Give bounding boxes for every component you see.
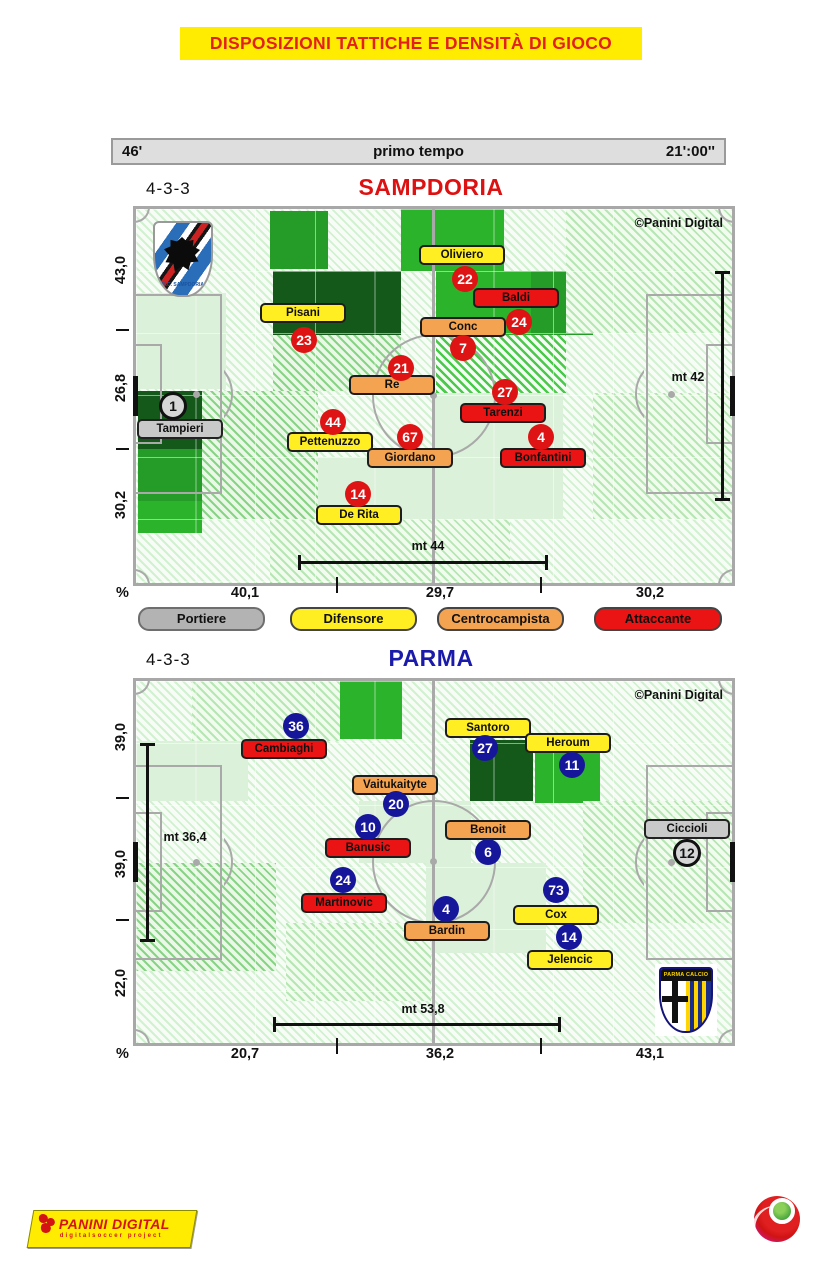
player-chip-cox: Cox: [513, 905, 599, 925]
player-chip-bonfantini: Bonfantini: [500, 448, 586, 468]
sampdoria-pitch: U.C. SAMPDORIA ©Panini Digital mt 42 mt …: [133, 206, 735, 586]
samp-zone-pct: 30,2: [605, 585, 695, 601]
player-chip-ciccioli: Ciccioli: [644, 819, 730, 839]
axis-tick: [336, 577, 338, 593]
player-number-7: 7: [450, 335, 476, 361]
player-number-14: 14: [556, 924, 582, 950]
parma-zone-pct: 36,2: [395, 1046, 485, 1062]
player-chip-martinovic: Martinovic: [301, 893, 387, 913]
parma-players-layer: Ciccioli12Santoro27Heroum11Cox73Jelencic…: [136, 681, 732, 1043]
player-number-67: 67: [397, 424, 423, 450]
player-chip-tarenzi: Tarenzi: [460, 403, 546, 423]
player-number-12: 12: [673, 839, 701, 867]
legend-defender: Difensore: [290, 607, 417, 631]
player-chip-cambiaghi: Cambiaghi: [241, 739, 327, 759]
parma-crest-text: PARMA CALCIO: [661, 969, 711, 981]
report-page: DISPOSIZIONI TATTICHE E DENSITÀ DI GIOCO…: [0, 0, 822, 1276]
player-chip-heroum: Heroum: [525, 733, 611, 753]
parma-zone-pct: 43,1: [605, 1046, 695, 1062]
legend-goalkeeper: Portiere: [138, 607, 265, 631]
player-number-24: 24: [330, 867, 356, 893]
player-number-6: 6: [475, 839, 501, 865]
legend-midfielder: Centrocampista: [437, 607, 564, 631]
player-chip-de-rita: De Rita: [316, 505, 402, 525]
samp-zone-pct: 40,1: [200, 585, 290, 601]
parma-crest-shield: PARMA CALCIO: [659, 967, 713, 1033]
player-chip-pisani: Pisani: [260, 303, 346, 323]
minute-label: 46': [122, 143, 242, 160]
parma-crest: PARMA CALCIO: [655, 964, 717, 1036]
axis-tick: [540, 577, 542, 593]
sampdoria-crest: U.C. SAMPDORIA: [153, 221, 213, 297]
parma-crest-cross: [672, 981, 678, 1023]
player-number-27: 27: [472, 735, 498, 761]
player-number-10: 10: [355, 814, 381, 840]
player-chip-jelencic: Jelencic: [527, 950, 613, 970]
player-number-23: 23: [291, 327, 317, 353]
samp-left-axis-value: 30,2: [113, 483, 129, 527]
parma-crest-cross: [662, 996, 688, 1002]
sphere-logo-ring: [769, 1198, 795, 1224]
parma-zone-pct: 20,7: [200, 1046, 290, 1062]
axis-tick: [116, 329, 129, 331]
parma-pitch: PARMA CALCIO ©Panini Digital mt 36,4 mt …: [133, 678, 735, 1046]
parma-left-axis-value: 22,0: [113, 961, 129, 1005]
axis-tick: [116, 448, 129, 450]
sampdoria-title: SAMPDORIA: [133, 174, 729, 201]
axis-tick: [336, 1038, 338, 1054]
sampdoria-crest-silhouette: [164, 237, 200, 273]
player-number-14: 14: [345, 481, 371, 507]
parma-left-axis-value: 39,0: [113, 715, 129, 759]
player-number-1: 1: [159, 392, 187, 420]
samp-left-axis-value: 43,0: [113, 248, 129, 292]
axis-tick: [540, 1038, 542, 1054]
player-number-36: 36: [283, 713, 309, 739]
player-chip-pettenuzzo: Pettenuzzo: [287, 432, 373, 452]
time-bar: 46' primo tempo 21':00'': [111, 138, 726, 165]
clock-label: 21':00'': [595, 143, 715, 160]
parma-left-axis-value: 39,0: [113, 842, 129, 886]
player-number-22: 22: [452, 266, 478, 292]
player-chip-banusic: Banusic: [325, 838, 411, 858]
player-number-27: 27: [492, 379, 518, 405]
axis-tick: [116, 797, 129, 799]
player-number-73: 73: [543, 877, 569, 903]
page-title: DISPOSIZIONI TATTICHE E DENSITÀ DI GIOCO: [180, 27, 642, 60]
panini-logo-title: PANINI DIGITAL: [59, 1216, 170, 1232]
player-chip-oliviero: Oliviero: [419, 245, 505, 265]
sampdoria-crest-text: U.C. SAMPDORIA: [155, 282, 211, 288]
parma-title: PARMA: [133, 645, 729, 672]
parma-percent-sign: %: [116, 1046, 129, 1062]
panini-digital-logo: PANINI DIGITAL digitalsoccer project: [27, 1210, 198, 1248]
player-chip-baldi: Baldi: [473, 288, 559, 308]
samp-percent-sign: %: [116, 585, 129, 601]
player-chip-giordano: Giordano: [367, 448, 453, 468]
player-number-44: 44: [320, 409, 346, 435]
player-chip-bardin: Bardin: [404, 921, 490, 941]
player-number-20: 20: [383, 791, 409, 817]
period-label: primo tempo: [242, 143, 595, 160]
player-chip-tampieri: Tampieri: [137, 419, 223, 439]
panini-logo-subtitle: digitalsoccer project: [60, 1233, 163, 1239]
player-number-11: 11: [559, 752, 585, 778]
player-number-4: 4: [528, 424, 554, 450]
player-chip-conc: Conc: [420, 317, 506, 337]
samp-left-axis-value: 26,8: [113, 366, 129, 410]
panini-logo-icon: [38, 1214, 56, 1234]
axis-tick: [116, 919, 129, 921]
legend-forward: Attaccante: [594, 607, 722, 631]
sampdoria-players-layer: Tampieri1Oliviero22Pisani23Pettenuzzo44D…: [136, 209, 732, 583]
player-number-21: 21: [388, 355, 414, 381]
player-chip-benoit: Benoit: [445, 820, 531, 840]
player-number-4: 4: [433, 896, 459, 922]
sphere-logo: [752, 1192, 804, 1248]
samp-zone-pct: 29,7: [395, 585, 485, 601]
player-number-24: 24: [506, 309, 532, 335]
